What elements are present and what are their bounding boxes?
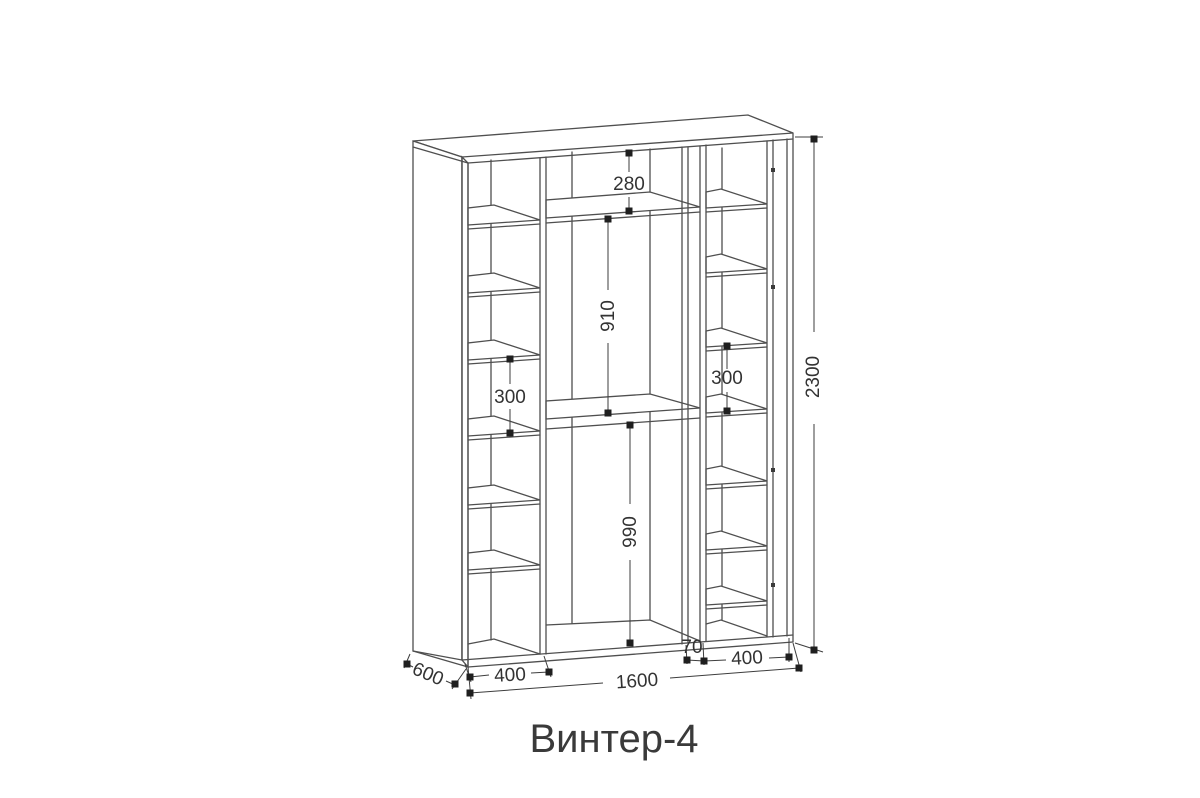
- middle-section: [546, 192, 700, 429]
- dim-label-280: 280: [613, 174, 645, 195]
- shelf: [706, 189, 767, 208]
- dim-label-left-400: 400: [494, 664, 527, 687]
- dim-label-right-400: 400: [731, 647, 764, 670]
- shelf: [468, 485, 540, 505]
- right-shelf-column: [706, 189, 767, 609]
- shelf: [706, 466, 767, 485]
- dim-label-600: 600: [409, 659, 446, 691]
- dim-label-990: 990: [620, 516, 641, 548]
- wardrobe-technical-drawing: 280 910 990 300 300 2300: [0, 0, 1200, 798]
- shelf: [706, 394, 767, 413]
- dim-label-1600: 1600: [615, 670, 659, 694]
- shelf: [706, 254, 767, 273]
- top-panel: [413, 115, 793, 157]
- shelf: [706, 328, 767, 347]
- dim-label-left-300: 300: [494, 387, 526, 408]
- dim-label-2300: 2300: [803, 356, 824, 398]
- shelf: [468, 550, 540, 570]
- shelf: [468, 340, 540, 360]
- dimension-upper-height-910: 910: [598, 216, 619, 417]
- dim-label-70: 70: [681, 637, 702, 658]
- dim-label-910: 910: [598, 300, 619, 332]
- shelf: [706, 531, 767, 550]
- drawing-title: Винтер-4: [529, 717, 698, 761]
- shelf: [468, 205, 540, 225]
- shelf: [468, 416, 540, 436]
- drawing-page: 280 910 990 300 300 2300: [0, 0, 1200, 798]
- left-side-panel-edge: [462, 157, 468, 667]
- dimension-left-section-400: 400: [465, 656, 553, 687]
- dimension-total-height-2300: 2300: [795, 136, 824, 654]
- dimension-lower-height-990: 990: [620, 422, 641, 647]
- left-side-panel: [413, 141, 462, 660]
- middle-mid-shelf: [546, 394, 700, 419]
- shelf: [706, 586, 767, 605]
- dim-label-right-300: 300: [711, 368, 743, 389]
- shelf: [468, 273, 540, 293]
